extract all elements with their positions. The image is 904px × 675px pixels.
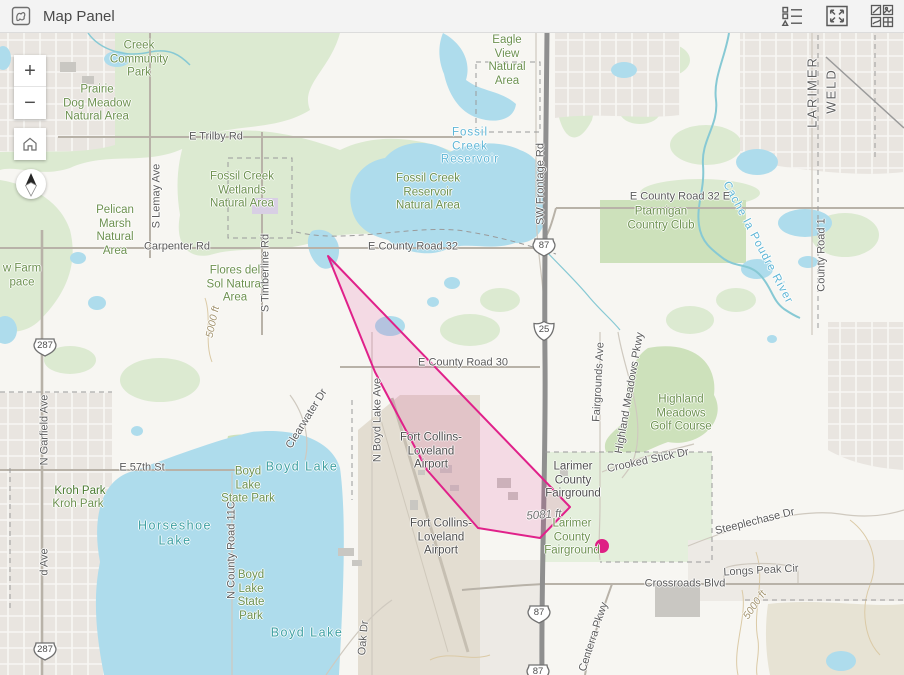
zoom-in-button[interactable]: + bbox=[14, 55, 46, 87]
compass-button[interactable] bbox=[16, 169, 46, 199]
panel-title: Map Panel bbox=[43, 8, 115, 25]
zoom-out-button[interactable]: − bbox=[14, 87, 46, 119]
home-icon bbox=[21, 135, 39, 153]
panel-header: Map Panel bbox=[0, 0, 904, 33]
home-button[interactable] bbox=[14, 128, 46, 160]
compass-needle-icon bbox=[16, 169, 46, 199]
map-canvas[interactable]: Creek Community ParkPrairie Dog Meadow N… bbox=[0, 33, 904, 675]
zoom-controls: + − bbox=[14, 55, 46, 119]
map-panel-icon bbox=[11, 6, 31, 26]
basemap bbox=[0, 33, 904, 675]
basemap-gallery-icon[interactable] bbox=[870, 4, 894, 28]
expand-icon[interactable] bbox=[825, 4, 849, 28]
legend-icon[interactable] bbox=[780, 4, 804, 28]
highlight-point[interactable] bbox=[595, 539, 609, 553]
header-actions bbox=[780, 4, 894, 28]
